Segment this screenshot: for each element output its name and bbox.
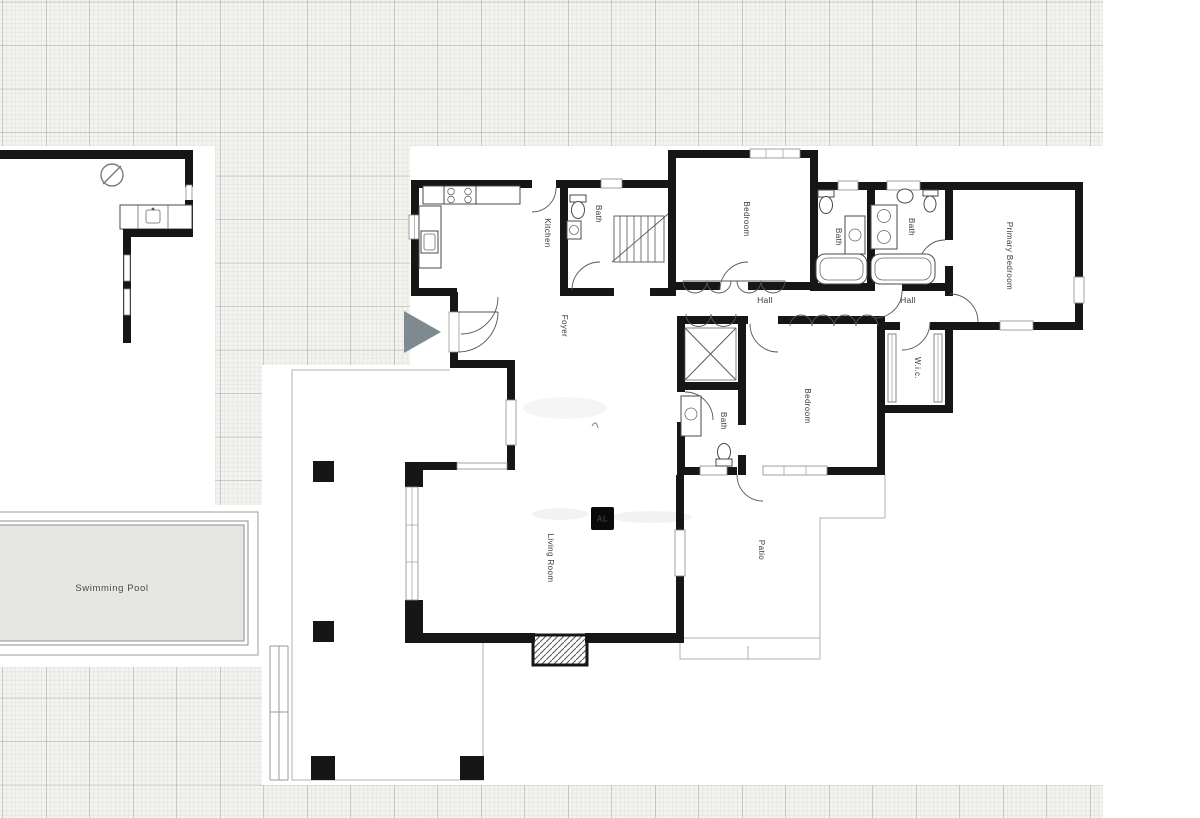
bath2-toilet-tank [818,190,834,197]
bath-top-toilet-tank [570,195,586,202]
garage-window-left1 [124,255,130,281]
floor-plan-drawing: Swimming Pool [0,0,1200,818]
patio-step [680,638,820,659]
bath4-label: Bath [719,412,728,430]
wall-living-bottom-right [585,633,684,643]
bath3-basin [897,189,913,203]
bath2-tub [816,254,867,284]
wall-bath-bottom [560,288,614,296]
wall-wic-top-left [885,322,900,330]
bath3-label: Bath [907,218,916,236]
bedroom-top-label: Bedroom [742,201,751,236]
swimming-pool-label: Swimming Pool [75,583,148,594]
wall-wic-bottom [885,405,953,413]
bath-top-sink [567,221,581,239]
wall-foyer-step-h [450,360,515,368]
sheet-region-right [1103,0,1200,818]
wall-wic-east [945,322,953,413]
deck-post-1 [313,461,334,482]
watermark-smudge-1 [523,397,607,419]
bath2-vanity [845,216,865,254]
hall-east-label: Hall [900,295,916,305]
wall-foyer-step-v [507,368,515,400]
bath4-window [700,466,727,475]
foyer-step-window [506,400,516,445]
garage-wall-right-upper [185,150,193,187]
living-room-label: Living Room [546,534,555,583]
wall-bath4-west-upper [677,322,685,392]
bath2-toilet [820,197,833,214]
wall-bedroom2-bath-divider [738,322,746,425]
wall-bedroom2-bottom [827,467,885,475]
living-east-window [675,530,685,576]
bath-top-toilet [572,202,585,219]
primary-east-window [1074,277,1084,303]
bath2-label: Bath [834,228,843,246]
wall-bedroom2-east [877,322,885,475]
garage-wall-top [0,150,193,159]
floor-plan-canvas: Swimming Pool [0,0,1200,818]
wall-primary-east [1075,182,1083,330]
wall-bath3-east-lower [945,266,953,296]
bath3-toilet [924,196,936,212]
bath4-toilet-tank [716,459,732,466]
staircase [612,214,668,262]
wall-living-west-corner-top [405,462,423,487]
fireplace [533,635,587,665]
watermark-logo-text: AL [597,515,609,524]
deck-post-4 [460,756,484,780]
garage-sink-faucet [152,208,155,211]
bedroom2-label: Bedroom [803,388,812,423]
wall-bedroom-west [668,150,676,291]
primary-bedroom-label: Primary Bedroom [1005,222,1014,290]
wall-foyer-west-upper [450,292,458,312]
wall-stairs-bottom [650,288,676,296]
wall-bath4-bottom2 [727,467,737,475]
garage-window-left2 [124,289,130,315]
wall-top-2 [622,180,676,188]
kitchen-label: Kitchen [543,218,552,247]
garage-wall-counter-bottom [123,229,193,237]
bedroom-top-window [750,149,800,158]
bath4-vanity [681,396,701,436]
wall-living-east-upper [676,475,684,530]
bath3-toilet-tank [923,190,938,196]
wall-wic-top-right [930,322,953,330]
bath2-window [838,181,858,190]
deck-post-2 [313,621,334,642]
wall-shower-bottom [677,382,738,390]
watermark-smudge-2 [532,508,588,520]
deck-post-3 [311,756,335,780]
wall-bedroom2-bath-divider2 [738,455,746,475]
bath-top-label: Bath [594,205,603,223]
wall-bath4-bottom1 [677,467,700,475]
wall-bath3-east-upper [945,182,953,240]
garage-window-right [186,185,192,202]
wall-living-east-lower [676,576,684,643]
primary-bottom-window [1000,321,1033,330]
living-north-window [457,463,507,469]
wall-living-bottom-left [405,633,535,643]
bath4-toilet [718,444,731,461]
garage-counter [120,205,192,229]
watermark-smudge-3 [612,511,692,523]
foyer-label: Foyer [560,315,569,337]
patio-label: Patio [757,540,766,560]
wic-label: W.i.c. [913,357,922,379]
sheet-region-deck [262,365,410,785]
hall-west-label: Hall [757,295,773,305]
wall-foyer-step-v2 [507,445,515,470]
bath3-double-vanity [871,205,897,249]
bath-top-window [601,179,622,188]
entry-threshold [449,312,459,352]
bedroom2-window [763,466,827,475]
